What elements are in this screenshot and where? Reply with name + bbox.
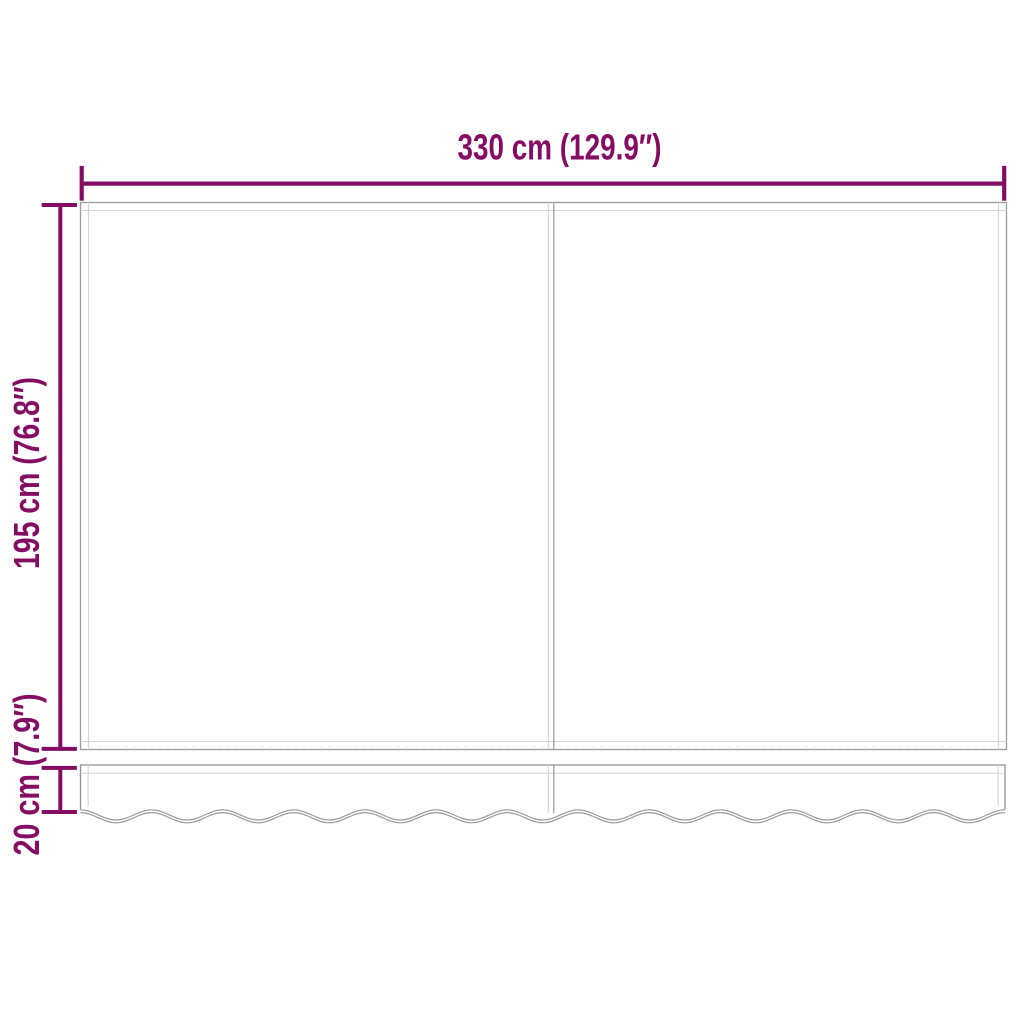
svg-text:195 cm (76.8″): 195 cm (76.8″) <box>6 377 47 569</box>
svg-text:330 cm (129.9″): 330 cm (129.9″) <box>458 127 662 168</box>
svg-text:20 cm (7.9″): 20 cm (7.9″) <box>6 694 47 856</box>
